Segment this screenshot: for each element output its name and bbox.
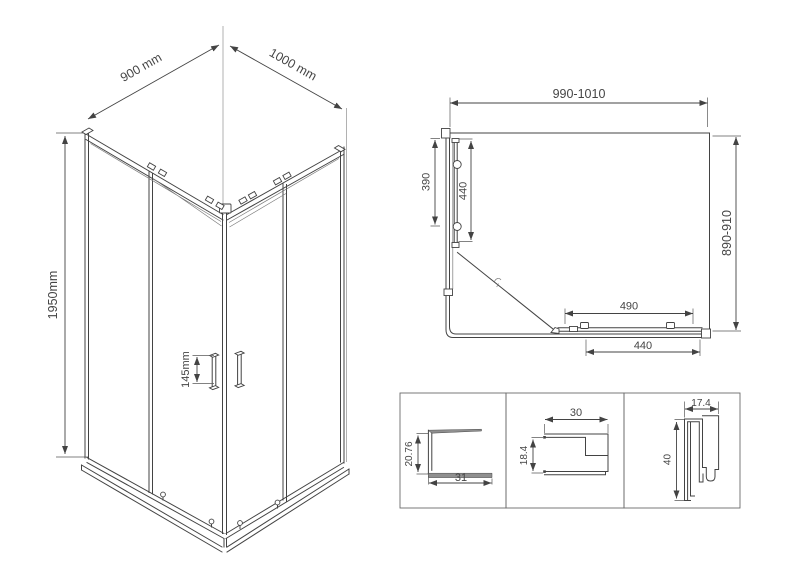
profile-detail-views: 20.76 31 30 18.4 17.4 40: [400, 393, 740, 508]
detail-box-3: [624, 393, 740, 508]
iso-height-label: 1950mm: [46, 271, 60, 320]
iso-height-dimension: 1950mm: [46, 133, 89, 457]
frame-profile-detail: 17.4 40: [663, 398, 719, 501]
iso-handle-dimension: 145mm: [180, 351, 214, 388]
door-handle-left: [210, 353, 219, 389]
plan-side-panel-label: 390: [421, 173, 433, 191]
detail3-height-label: 40: [663, 454, 674, 466]
detail2-width-label: 30: [570, 407, 582, 419]
enclosure-frame-lines: [82, 131, 350, 552]
plan-front-panel-dimension: 440: [586, 340, 700, 357]
isometric-view: 900 mm 1000 mm 1950mm: [46, 26, 349, 552]
iso-width-dimension: 900 mm: [88, 45, 219, 119]
wall-profile-detail: 20.76 31: [404, 429, 492, 484]
plan-view: 990-1010 890-910: [421, 87, 742, 356]
rail-profile-detail: 30 18.4: [519, 407, 608, 475]
drawing-svg: 900 mm 1000 mm 1950mm: [0, 0, 800, 566]
plan-width-label: 990-1010: [553, 87, 606, 101]
plan-depth-dimension: 890-910: [713, 136, 742, 331]
detail-box-1: [400, 393, 506, 508]
plan-front-door-dimension: 490: [565, 301, 693, 325]
door-travel-diagonal: [458, 253, 559, 334]
iso-handle-label: 145mm: [180, 351, 192, 388]
plan-depth-label: 890-910: [720, 210, 734, 256]
corner-cap-right: [335, 146, 346, 152]
iso-depth-dimension: 1000 mm: [230, 46, 342, 109]
plan-front-panel-label: 440: [634, 340, 652, 352]
glass-edge-lines: [91, 144, 340, 228]
plan-outline: [446, 133, 710, 338]
detail1-width-label: 31: [455, 472, 467, 484]
shower-enclosure-technical-drawing: 900 mm 1000 mm 1950mm: [0, 0, 800, 566]
profile-end-dot: [543, 470, 546, 473]
profile-end-dot: [543, 436, 546, 439]
iso-depth-label: 1000 mm: [267, 46, 319, 84]
plan-bottom-door: [551, 323, 711, 339]
plan-side-door-label: 440: [458, 182, 470, 200]
center-guide-line: [223, 26, 347, 462]
detail1-height-label: 20.76: [404, 441, 415, 466]
corner-cap-left: [82, 128, 93, 135]
plan-corner-fitting: [442, 129, 451, 139]
bottom-guide-rollers: [161, 492, 280, 528]
top-roller-brackets: [147, 163, 291, 210]
detail3-width-label: 17.4: [691, 398, 711, 409]
plan-left-wall-bracket: [444, 289, 453, 296]
detail2-height-label: 18.4: [519, 445, 530, 465]
plan-side-panel-dimension: 390: [421, 139, 441, 227]
door-handle-right: [235, 351, 244, 387]
plan-width-dimension: 990-1010: [450, 87, 708, 127]
plan-front-door-label: 490: [620, 301, 638, 313]
